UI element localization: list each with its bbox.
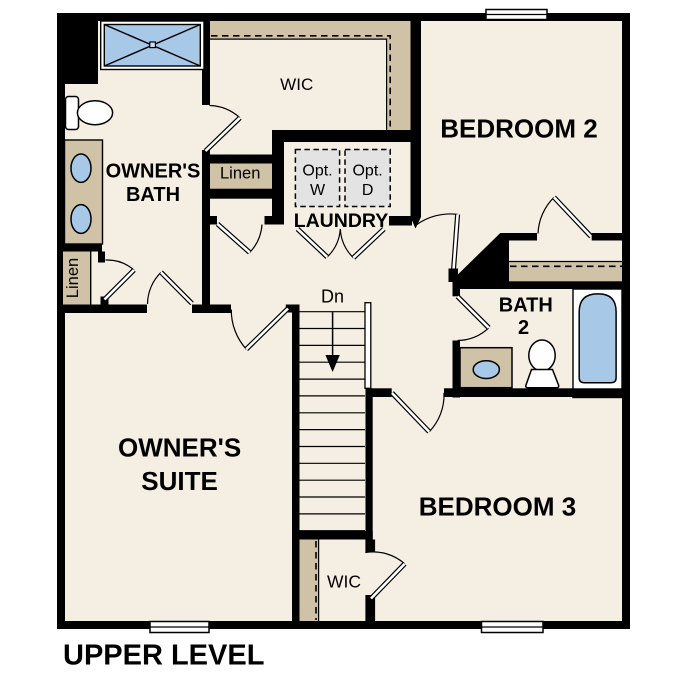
svg-text:Linen: Linen [220,165,260,183]
svg-text:OWNER'S: OWNER'S [118,433,241,463]
svg-text:2: 2 [518,317,529,339]
svg-text:BATH: BATH [126,184,180,206]
svg-text:UPPER LEVEL: UPPER LEVEL [63,640,264,672]
svg-text:BEDROOM 3: BEDROOM 3 [419,492,576,522]
svg-text:W: W [310,182,326,199]
svg-text:Opt.: Opt. [352,163,382,180]
svg-text:LAUNDRY: LAUNDRY [294,210,389,232]
svg-text:Dn: Dn [321,287,344,307]
svg-text:BEDROOM 2: BEDROOM 2 [440,114,597,144]
svg-text:BATH: BATH [499,295,553,317]
svg-text:Opt.: Opt. [302,163,332,180]
svg-text:SUITE: SUITE [141,466,218,496]
svg-text:WIC: WIC [280,75,313,94]
svg-text:D: D [362,182,374,199]
svg-text:Linen: Linen [64,258,82,298]
svg-text:WIC: WIC [327,572,361,592]
svg-text:OWNER'S: OWNER'S [106,161,201,183]
